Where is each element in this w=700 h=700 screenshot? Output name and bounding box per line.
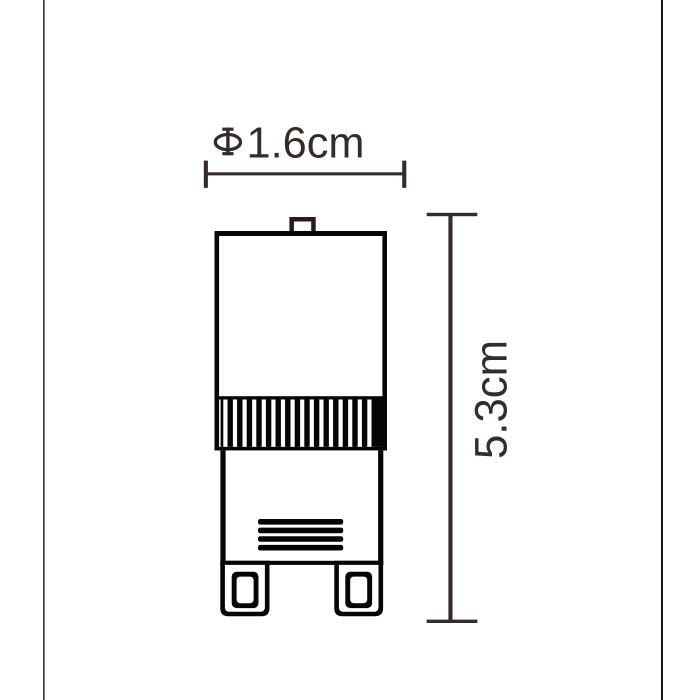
svg-text:1.6cm: 1.6cm bbox=[247, 118, 365, 167]
svg-text:5.3cm: 5.3cm bbox=[466, 340, 517, 459]
